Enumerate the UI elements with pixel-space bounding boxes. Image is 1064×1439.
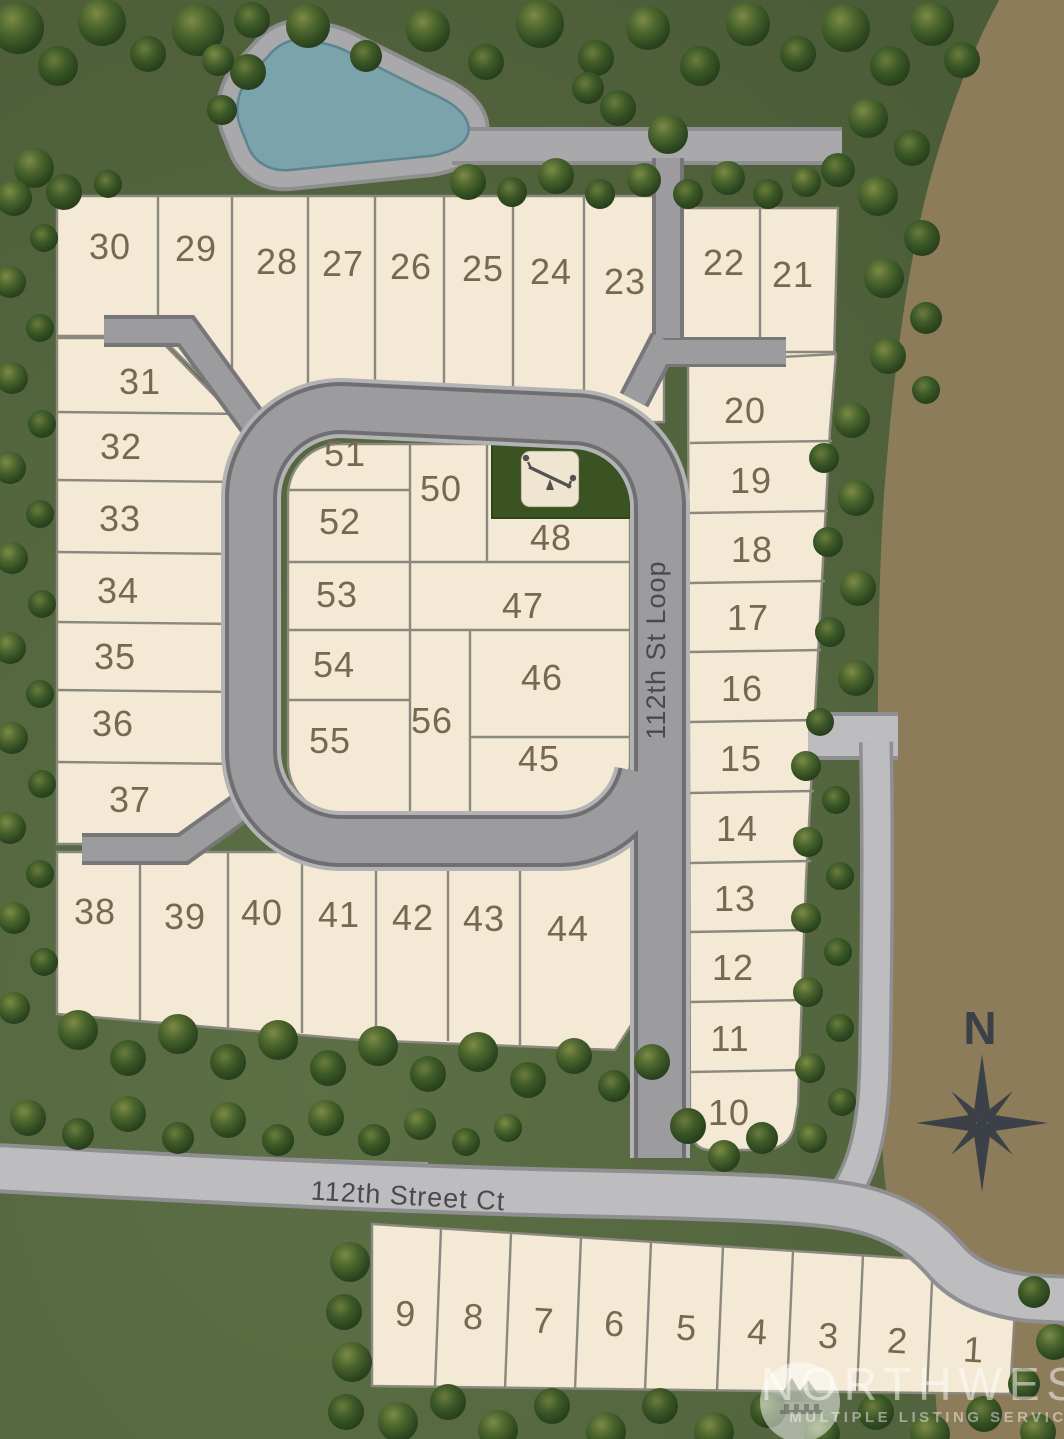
tree xyxy=(821,153,855,187)
lot-label-32: 32 xyxy=(100,426,142,467)
tree xyxy=(30,948,58,976)
lot-label-55: 55 xyxy=(309,720,351,761)
tree xyxy=(642,1388,678,1424)
lot-label-22: 22 xyxy=(703,242,745,283)
site-map-canvas: 30 29 28 27 26 25 24 23 22 21 20 19 18 1… xyxy=(0,0,1064,1439)
tree xyxy=(648,114,688,154)
tree xyxy=(494,1114,522,1142)
lot-label-7: 7 xyxy=(532,1299,555,1341)
lot-label-41: 41 xyxy=(318,894,360,935)
tree xyxy=(38,46,78,86)
tree xyxy=(838,660,874,696)
tree xyxy=(330,1242,370,1282)
tree xyxy=(58,1010,98,1050)
lot-label-45: 45 xyxy=(518,738,560,779)
tree xyxy=(230,54,266,90)
tree xyxy=(780,36,816,72)
tree xyxy=(600,90,636,126)
lot-label-13: 13 xyxy=(714,878,756,919)
tree xyxy=(62,1118,94,1150)
lot-label-48: 48 xyxy=(530,517,572,558)
tree xyxy=(26,860,54,888)
tree xyxy=(350,40,382,72)
lot-label-54: 54 xyxy=(313,644,355,685)
lot-label-53: 53 xyxy=(316,574,358,615)
lot-label-34: 34 xyxy=(97,570,139,611)
tree xyxy=(286,4,330,48)
tree xyxy=(711,161,745,195)
tree xyxy=(944,42,980,78)
lot-label-50: 50 xyxy=(420,468,462,509)
tree xyxy=(358,1124,390,1156)
tree xyxy=(791,903,821,933)
tree xyxy=(308,1100,344,1136)
lot-label-11: 11 xyxy=(710,1018,749,1059)
tree xyxy=(406,8,450,52)
lot-label-39: 39 xyxy=(164,896,206,937)
tree xyxy=(864,258,904,298)
lot-label-19: 19 xyxy=(730,460,772,501)
tree xyxy=(828,1088,856,1116)
tree xyxy=(870,46,910,86)
tree xyxy=(458,1032,498,1072)
lot-label-52: 52 xyxy=(319,501,361,542)
tree xyxy=(234,2,270,38)
lot-label-33: 33 xyxy=(99,498,141,539)
tree xyxy=(572,72,604,104)
tree xyxy=(534,1388,570,1424)
tree xyxy=(26,500,54,528)
lot-label-9: 9 xyxy=(394,1292,417,1334)
lot-label-43: 43 xyxy=(463,898,505,939)
tree xyxy=(578,40,614,76)
tree xyxy=(813,527,843,557)
lot-label-25: 25 xyxy=(462,248,504,289)
lot-label-27: 27 xyxy=(322,243,364,284)
tree xyxy=(795,1053,825,1083)
tree xyxy=(791,751,821,781)
tree xyxy=(791,167,821,197)
tree xyxy=(326,1294,362,1330)
lot-label-21: 21 xyxy=(772,254,814,295)
tree xyxy=(708,1140,740,1172)
tree xyxy=(824,938,852,966)
tree xyxy=(110,1040,146,1076)
tree xyxy=(258,1020,298,1060)
tree xyxy=(726,2,770,46)
tree xyxy=(78,0,126,46)
tree xyxy=(26,680,54,708)
lot-label-35: 35 xyxy=(94,636,136,677)
tree xyxy=(673,179,703,209)
tree xyxy=(894,130,930,166)
lot-label-4: 4 xyxy=(746,1310,769,1352)
lot-label-24: 24 xyxy=(530,251,572,292)
lot-label-3: 3 xyxy=(817,1314,840,1356)
tree xyxy=(202,44,234,76)
lot-label-40: 40 xyxy=(241,892,283,933)
lot-label-36: 36 xyxy=(92,703,134,744)
tree xyxy=(797,1123,827,1153)
lot-label-38: 38 xyxy=(74,891,116,932)
tree xyxy=(158,1014,198,1054)
tree xyxy=(162,1122,194,1154)
tree xyxy=(1018,1276,1050,1308)
tree xyxy=(834,402,870,438)
lot-label-17: 17 xyxy=(727,597,769,638)
tree xyxy=(516,0,564,48)
lot-label-29: 29 xyxy=(175,228,217,269)
tree xyxy=(910,2,954,46)
lot-label-46: 46 xyxy=(521,657,563,698)
lot-label-26: 26 xyxy=(390,246,432,287)
tree xyxy=(28,770,56,798)
lot-label-20: 20 xyxy=(724,390,766,431)
tree xyxy=(627,163,661,197)
lot-label-56: 56 xyxy=(411,700,453,741)
lot-label-28: 28 xyxy=(256,241,298,282)
tree xyxy=(910,302,942,334)
lot-label-8: 8 xyxy=(462,1295,485,1337)
tree xyxy=(28,590,56,618)
watermark-brand: NORTHWEST xyxy=(761,1358,1064,1410)
tree xyxy=(822,786,850,814)
tree xyxy=(430,1384,466,1420)
tree xyxy=(809,443,839,473)
tree xyxy=(815,617,845,647)
lot-label-31: 31 xyxy=(119,361,161,402)
tree xyxy=(848,98,888,138)
lot-label-16: 16 xyxy=(721,668,763,709)
tree xyxy=(598,1070,630,1102)
tree xyxy=(130,36,166,72)
tree xyxy=(328,1394,364,1430)
tree xyxy=(404,1108,436,1140)
tree xyxy=(858,176,898,216)
lot-label-15: 15 xyxy=(720,738,762,779)
tree xyxy=(840,570,876,606)
lot-label-42: 42 xyxy=(392,897,434,938)
tree xyxy=(410,1056,446,1092)
tree xyxy=(806,708,834,736)
lot-label-6: 6 xyxy=(603,1302,626,1344)
tree xyxy=(556,1038,592,1074)
tree xyxy=(822,4,870,52)
tree xyxy=(30,224,58,252)
tree xyxy=(634,1044,670,1080)
lot-label-14: 14 xyxy=(716,808,758,849)
tree xyxy=(110,1096,146,1132)
tree xyxy=(468,44,504,80)
lot-label-51: 51 xyxy=(324,433,366,474)
tree xyxy=(746,1122,778,1154)
tree xyxy=(207,95,237,125)
lot-label-23: 23 xyxy=(604,261,646,302)
tree xyxy=(838,480,874,516)
lot-label-47: 47 xyxy=(502,585,544,626)
tree xyxy=(870,338,906,374)
lot-label-37: 37 xyxy=(109,779,151,820)
tree xyxy=(210,1044,246,1080)
lot-label-30: 30 xyxy=(89,226,131,267)
tree xyxy=(585,179,615,209)
tree xyxy=(26,314,54,342)
tree xyxy=(358,1026,398,1066)
tree xyxy=(46,174,82,210)
tree xyxy=(904,220,940,256)
tree xyxy=(538,158,574,194)
tree xyxy=(10,1100,46,1136)
tree xyxy=(826,1014,854,1042)
lot-label-2: 2 xyxy=(886,1319,909,1361)
tree xyxy=(912,376,940,404)
lot-label-44: 44 xyxy=(547,908,589,949)
lot-label-10: 10 xyxy=(708,1092,750,1133)
compass-north-label: N xyxy=(963,1002,996,1054)
lot-label-12: 12 xyxy=(712,947,754,988)
tree xyxy=(94,170,122,198)
tree xyxy=(510,1062,546,1098)
tree xyxy=(626,6,670,50)
tree xyxy=(793,977,823,1007)
tree xyxy=(680,46,720,86)
tree xyxy=(450,164,486,200)
plat-map: 30 29 28 27 26 25 24 23 22 21 20 19 18 1… xyxy=(0,0,1064,1439)
tree xyxy=(28,410,56,438)
tree xyxy=(210,1102,246,1138)
lot-label-5: 5 xyxy=(675,1306,698,1348)
tree xyxy=(332,1342,372,1382)
street-label-112th-st-loop: 112th St Loop xyxy=(641,560,671,739)
tree xyxy=(826,862,854,890)
watermark-tagline: MULTIPLE LISTING SERVICE® xyxy=(789,1409,1064,1426)
tree xyxy=(670,1108,706,1144)
tree xyxy=(753,179,783,209)
tree xyxy=(452,1128,480,1156)
tree xyxy=(497,177,527,207)
tree xyxy=(793,827,823,857)
tree xyxy=(262,1124,294,1156)
tree xyxy=(310,1050,346,1086)
lot-label-18: 18 xyxy=(731,529,773,570)
